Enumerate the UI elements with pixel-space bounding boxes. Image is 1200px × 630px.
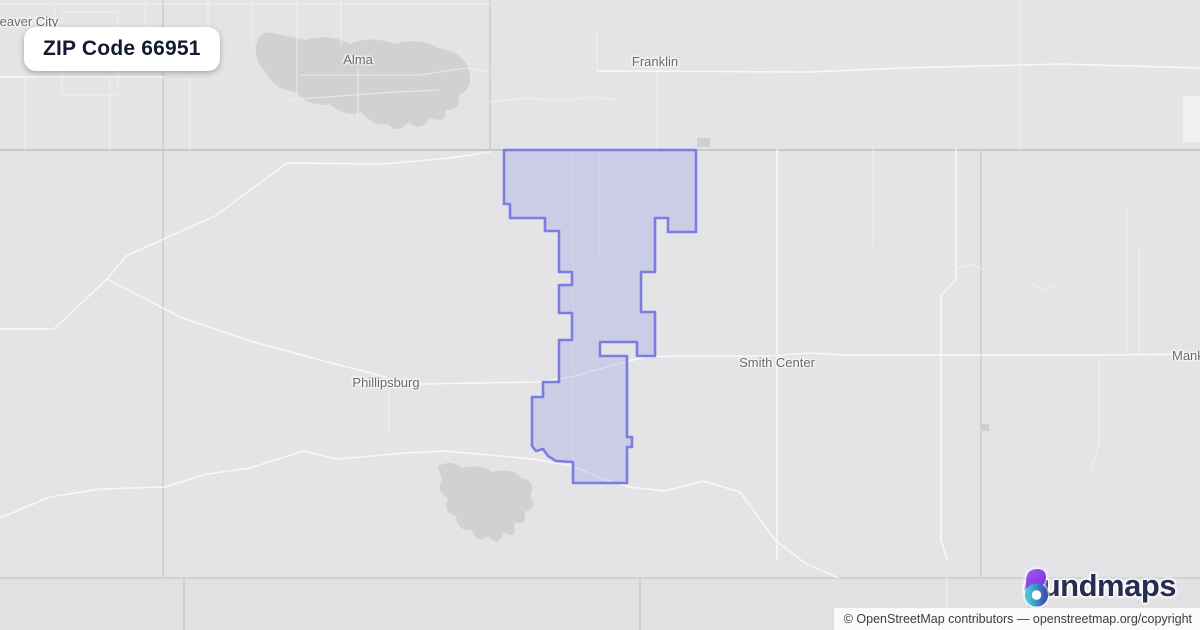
road-us36-west: [420, 356, 680, 384]
town-square-1: [697, 138, 710, 147]
boundmaps-b-icon: [1023, 566, 1050, 607]
city-label-phillipsburg: Phillipsburg: [352, 375, 419, 390]
road-nw-diagonal: [0, 152, 490, 329]
road-river-wiggle: [490, 97, 620, 102]
road-to-phillipsburg: [107, 279, 386, 377]
boundmaps-logo: oundmaps: [1023, 566, 1176, 606]
map-canvas[interactable]: [0, 0, 1200, 630]
city-label-franklin: Franklin: [632, 54, 678, 69]
road-franklin-h: [598, 64, 1200, 72]
road-east-v5: [1090, 355, 1099, 470]
lake-kirwin: [438, 463, 533, 542]
creek-east-2: [1030, 283, 1055, 290]
map-viewport: Beaver CityAlmaFranklinPhillipsburgSmith…: [0, 0, 1200, 630]
zip-boundary[interactable]: [504, 150, 696, 483]
city-label-alma: Alma: [343, 52, 373, 67]
city-label-smith-center: Smith Center: [739, 355, 815, 370]
attribution-bar[interactable]: © OpenStreetMap contributors — openstree…: [834, 608, 1200, 630]
lake-harlan: [256, 32, 470, 129]
zip-title-text: ZIP Code 66951: [43, 37, 201, 60]
zip-title-card: ZIP Code 66951: [24, 27, 220, 71]
map-patch-topright: [1183, 96, 1200, 142]
town-square-2: [981, 424, 989, 431]
city-label-mankato: Mankato: [1172, 348, 1200, 363]
